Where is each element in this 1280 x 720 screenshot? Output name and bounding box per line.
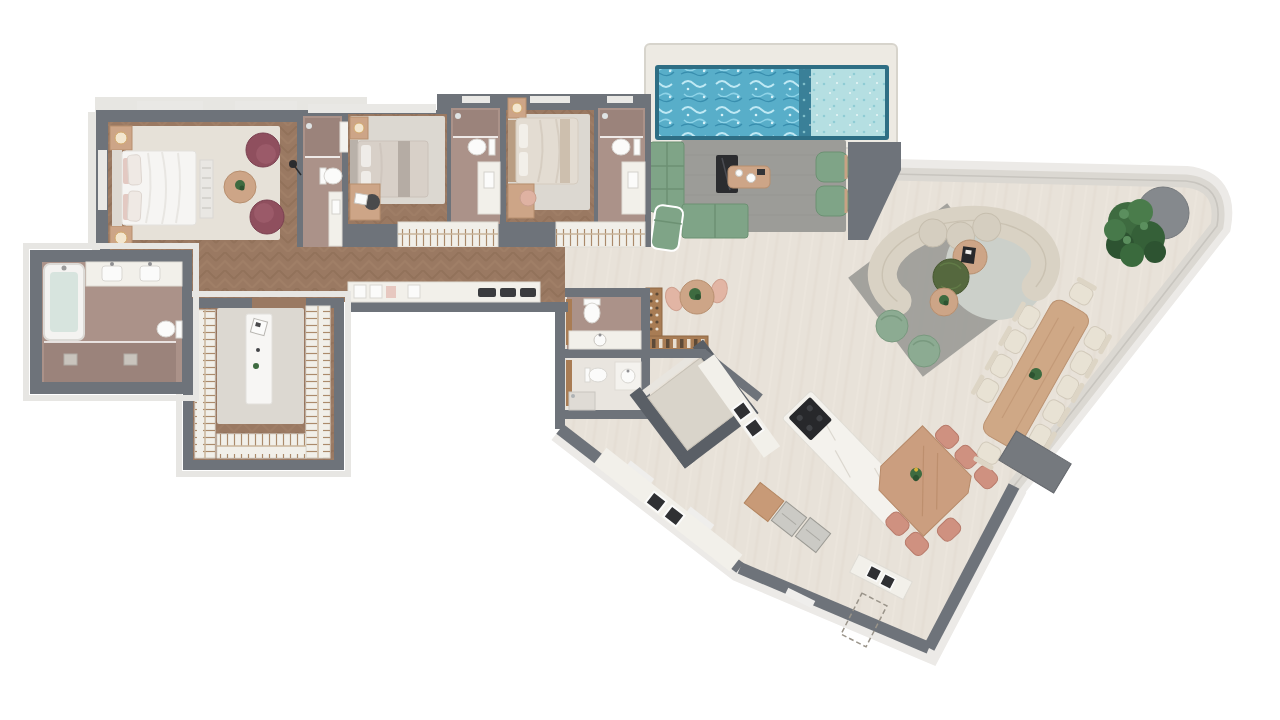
bath1-sink — [332, 200, 340, 214]
pool-shallow-texture — [811, 69, 885, 136]
bed3-desk-chair — [520, 190, 536, 206]
closet-entry — [252, 298, 306, 308]
towels — [386, 286, 396, 298]
vanity-sink-2 — [140, 266, 160, 281]
bed2-laptop — [354, 193, 368, 205]
bathtub — [44, 264, 84, 340]
master-toilet — [157, 321, 175, 337]
powder-2-toilet — [589, 368, 607, 382]
bed3-lamp — [512, 103, 522, 113]
armchair-green-2 — [816, 186, 848, 216]
master-shower — [44, 342, 176, 382]
bath1-shower-head — [306, 123, 312, 129]
sage-pouf-2 — [908, 335, 940, 367]
bathroom-3 — [598, 108, 645, 224]
vanity-sink-1 — [102, 266, 122, 281]
laundry-sink-3 — [408, 285, 420, 298]
terrace-wing — [558, 44, 1219, 648]
armchair-green-1 — [816, 152, 848, 182]
bath3-sink — [628, 172, 638, 188]
shower-drain-2 — [124, 354, 137, 365]
floor-plan-canvas — [0, 0, 1280, 720]
wall-to-elevator — [650, 349, 706, 358]
laundry-sink-2 — [370, 285, 382, 298]
lamp-1 — [115, 132, 127, 144]
pool-deep-texture — [659, 69, 799, 136]
hall-bottom-wall — [345, 302, 568, 312]
shower-drain-1 — [64, 354, 77, 365]
bath3-toilet — [612, 139, 630, 155]
small-appliance-1 — [478, 288, 496, 297]
balcony-strip-left — [88, 112, 96, 248]
bedroom-2 — [348, 114, 447, 224]
sage-pouf-1 — [876, 310, 908, 342]
bath2-toilet — [468, 139, 486, 155]
walk-in-closet — [179, 294, 348, 474]
small-appliance-2 — [500, 288, 516, 297]
small-appliance-3 — [520, 288, 536, 297]
bedroom-3 — [506, 98, 594, 222]
laundry-sink-1 — [354, 285, 366, 298]
bath1-toilet — [324, 168, 342, 184]
pool-divider-texture — [799, 69, 811, 136]
master-bedroom — [108, 122, 301, 250]
bed2-lamp — [354, 123, 364, 133]
pool-area — [645, 44, 897, 148]
bed-3 — [508, 118, 578, 184]
lamp-2 — [115, 232, 127, 244]
bath2-sink — [484, 172, 494, 188]
bathroom-2 — [451, 108, 500, 224]
black-tray — [961, 246, 976, 264]
master-bathroom — [26, 246, 196, 398]
floor-plan-svg — [0, 0, 1280, 720]
laundry-counter — [348, 282, 540, 302]
powder-1-toilet — [584, 303, 600, 323]
double-vanity — [86, 262, 182, 286]
chaise-lounge — [650, 204, 684, 251]
